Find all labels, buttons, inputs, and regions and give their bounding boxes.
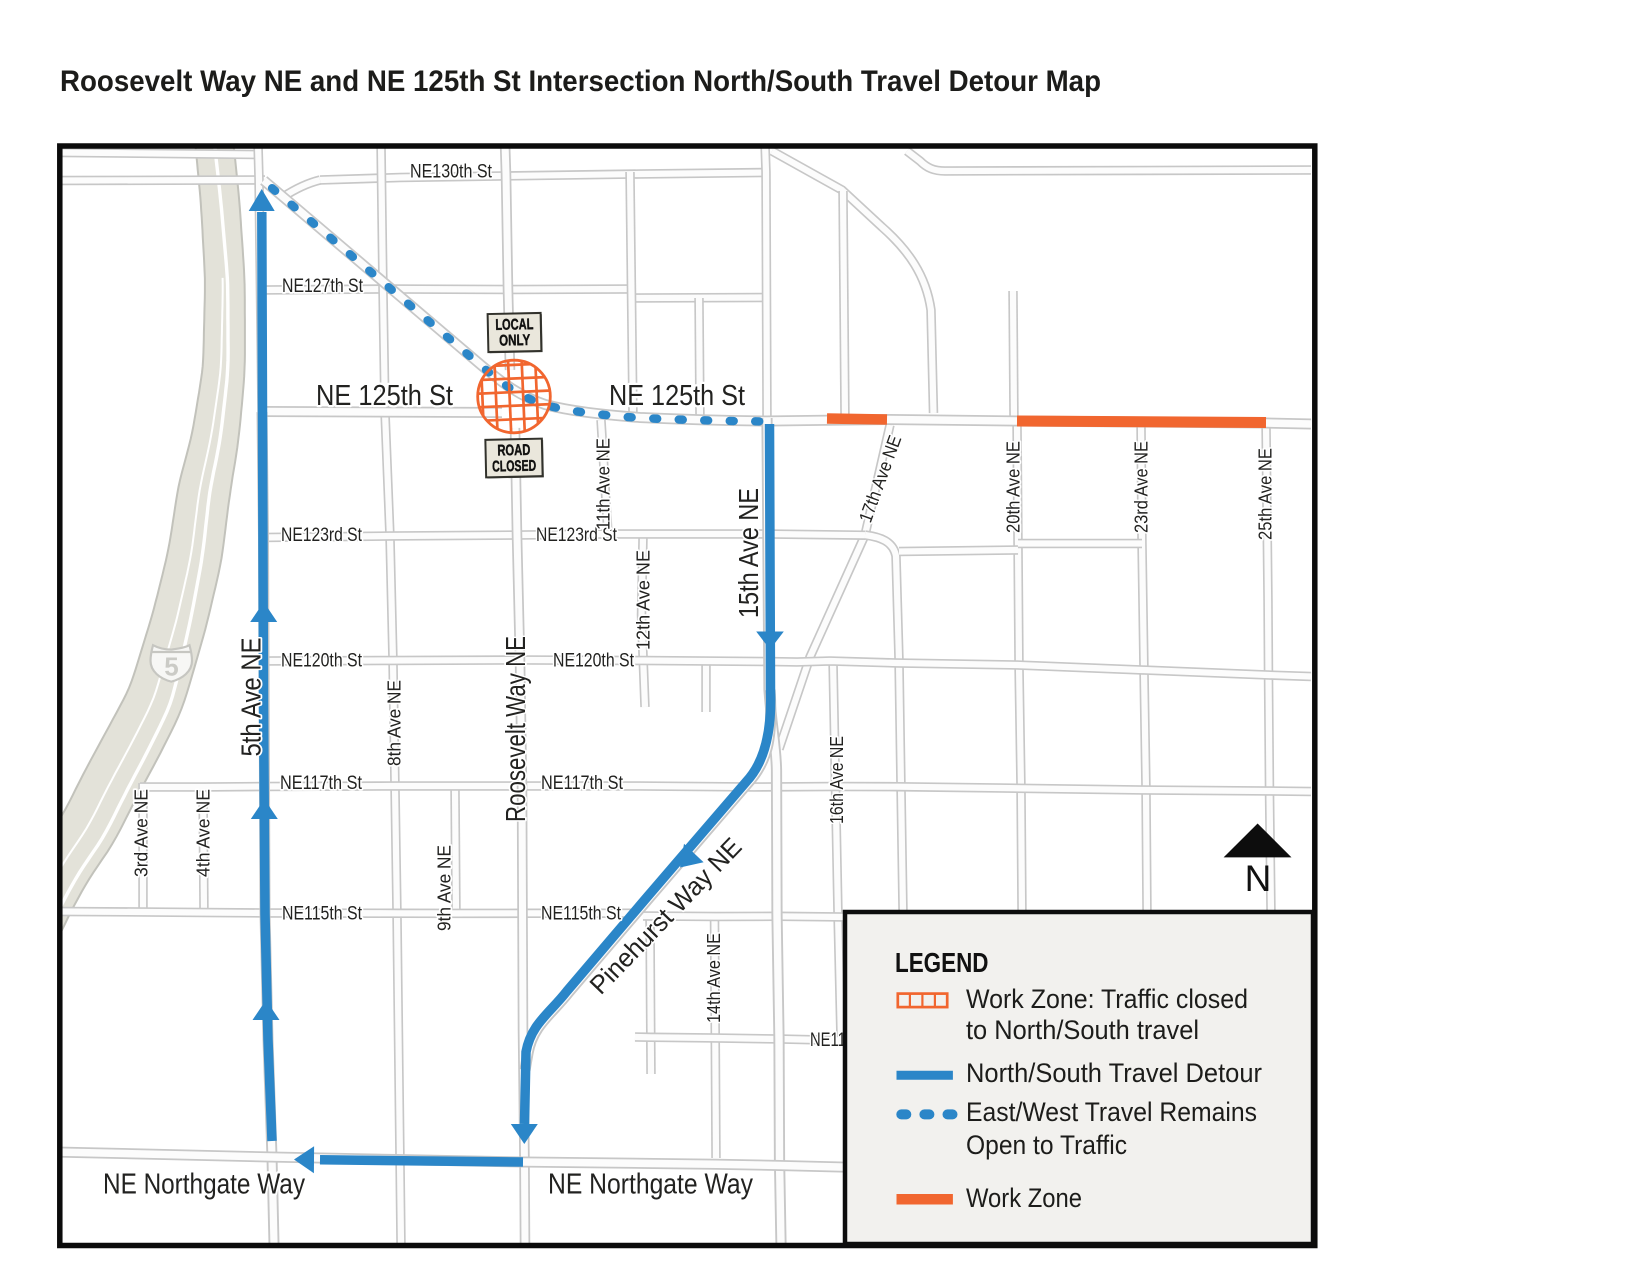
svg-text:NE 125th St: NE 125th St [609,380,745,412]
svg-text:NE115th St: NE115th St [282,904,363,925]
svg-text:Roosevelt Way NE and NE 125th: Roosevelt Way NE and NE 125th St Interse… [60,65,1101,98]
svg-text:11th Ave NE: 11th Ave NE [593,438,614,530]
svg-text:5th Ave NE: 5th Ave NE [236,638,267,757]
svg-text:12th Ave NE: 12th Ave NE [633,550,654,650]
svg-text:NE Northgate Way: NE Northgate Way [548,1169,753,1201]
svg-text:9th Ave NE: 9th Ave NE [434,845,455,931]
svg-text:CLOSED: CLOSED [492,458,536,476]
svg-text:3rd Ave NE: 3rd Ave NE [131,789,152,877]
svg-text:East/West Travel Remains: East/West Travel Remains [966,1097,1257,1127]
svg-text:NE127th St: NE127th St [282,276,364,297]
svg-text:14th Ave NE: 14th Ave NE [703,933,724,1023]
svg-text:Work Zone: Work Zone [966,1183,1082,1213]
svg-text:Work Zone: Traffic closed: Work Zone: Traffic closed [966,984,1248,1014]
svg-text:NE 125th St: NE 125th St [316,380,453,412]
svg-text:23rd Ave NE: 23rd Ave NE [1131,441,1152,533]
svg-text:NE120th St: NE120th St [553,651,635,672]
svg-text:NE117th St: NE117th St [541,773,624,794]
svg-text:25th Ave NE: 25th Ave NE [1255,448,1276,540]
svg-text:5: 5 [164,652,178,682]
svg-text:NE115th St: NE115th St [541,904,622,925]
svg-text:8th Ave NE: 8th Ave NE [384,680,405,766]
svg-text:16th Ave NE: 16th Ave NE [826,736,847,824]
svg-text:NE Northgate Way: NE Northgate Way [103,1169,305,1201]
svg-text:Roosevelt Way NE: Roosevelt Way NE [500,636,531,822]
svg-text:LEGEND: LEGEND [895,947,989,978]
svg-text:ONLY: ONLY [499,332,531,350]
svg-text:20th Ave NE: 20th Ave NE [1003,441,1024,533]
svg-text:N: N [1245,858,1272,899]
svg-text:to North/South travel: to North/South travel [966,1015,1199,1045]
svg-text:NE130th St: NE130th St [410,162,493,183]
svg-text:Open to Traffic: Open to Traffic [966,1130,1127,1160]
svg-text:15th Ave NE: 15th Ave NE [733,488,764,618]
svg-text:NE123rd St: NE123rd St [281,525,363,546]
svg-text:North/South Travel Detour: North/South Travel Detour [966,1058,1262,1088]
svg-text:NE117th St: NE117th St [280,773,363,794]
svg-text:NE120th St: NE120th St [281,651,363,672]
svg-text:4th Ave NE: 4th Ave NE [193,789,214,877]
